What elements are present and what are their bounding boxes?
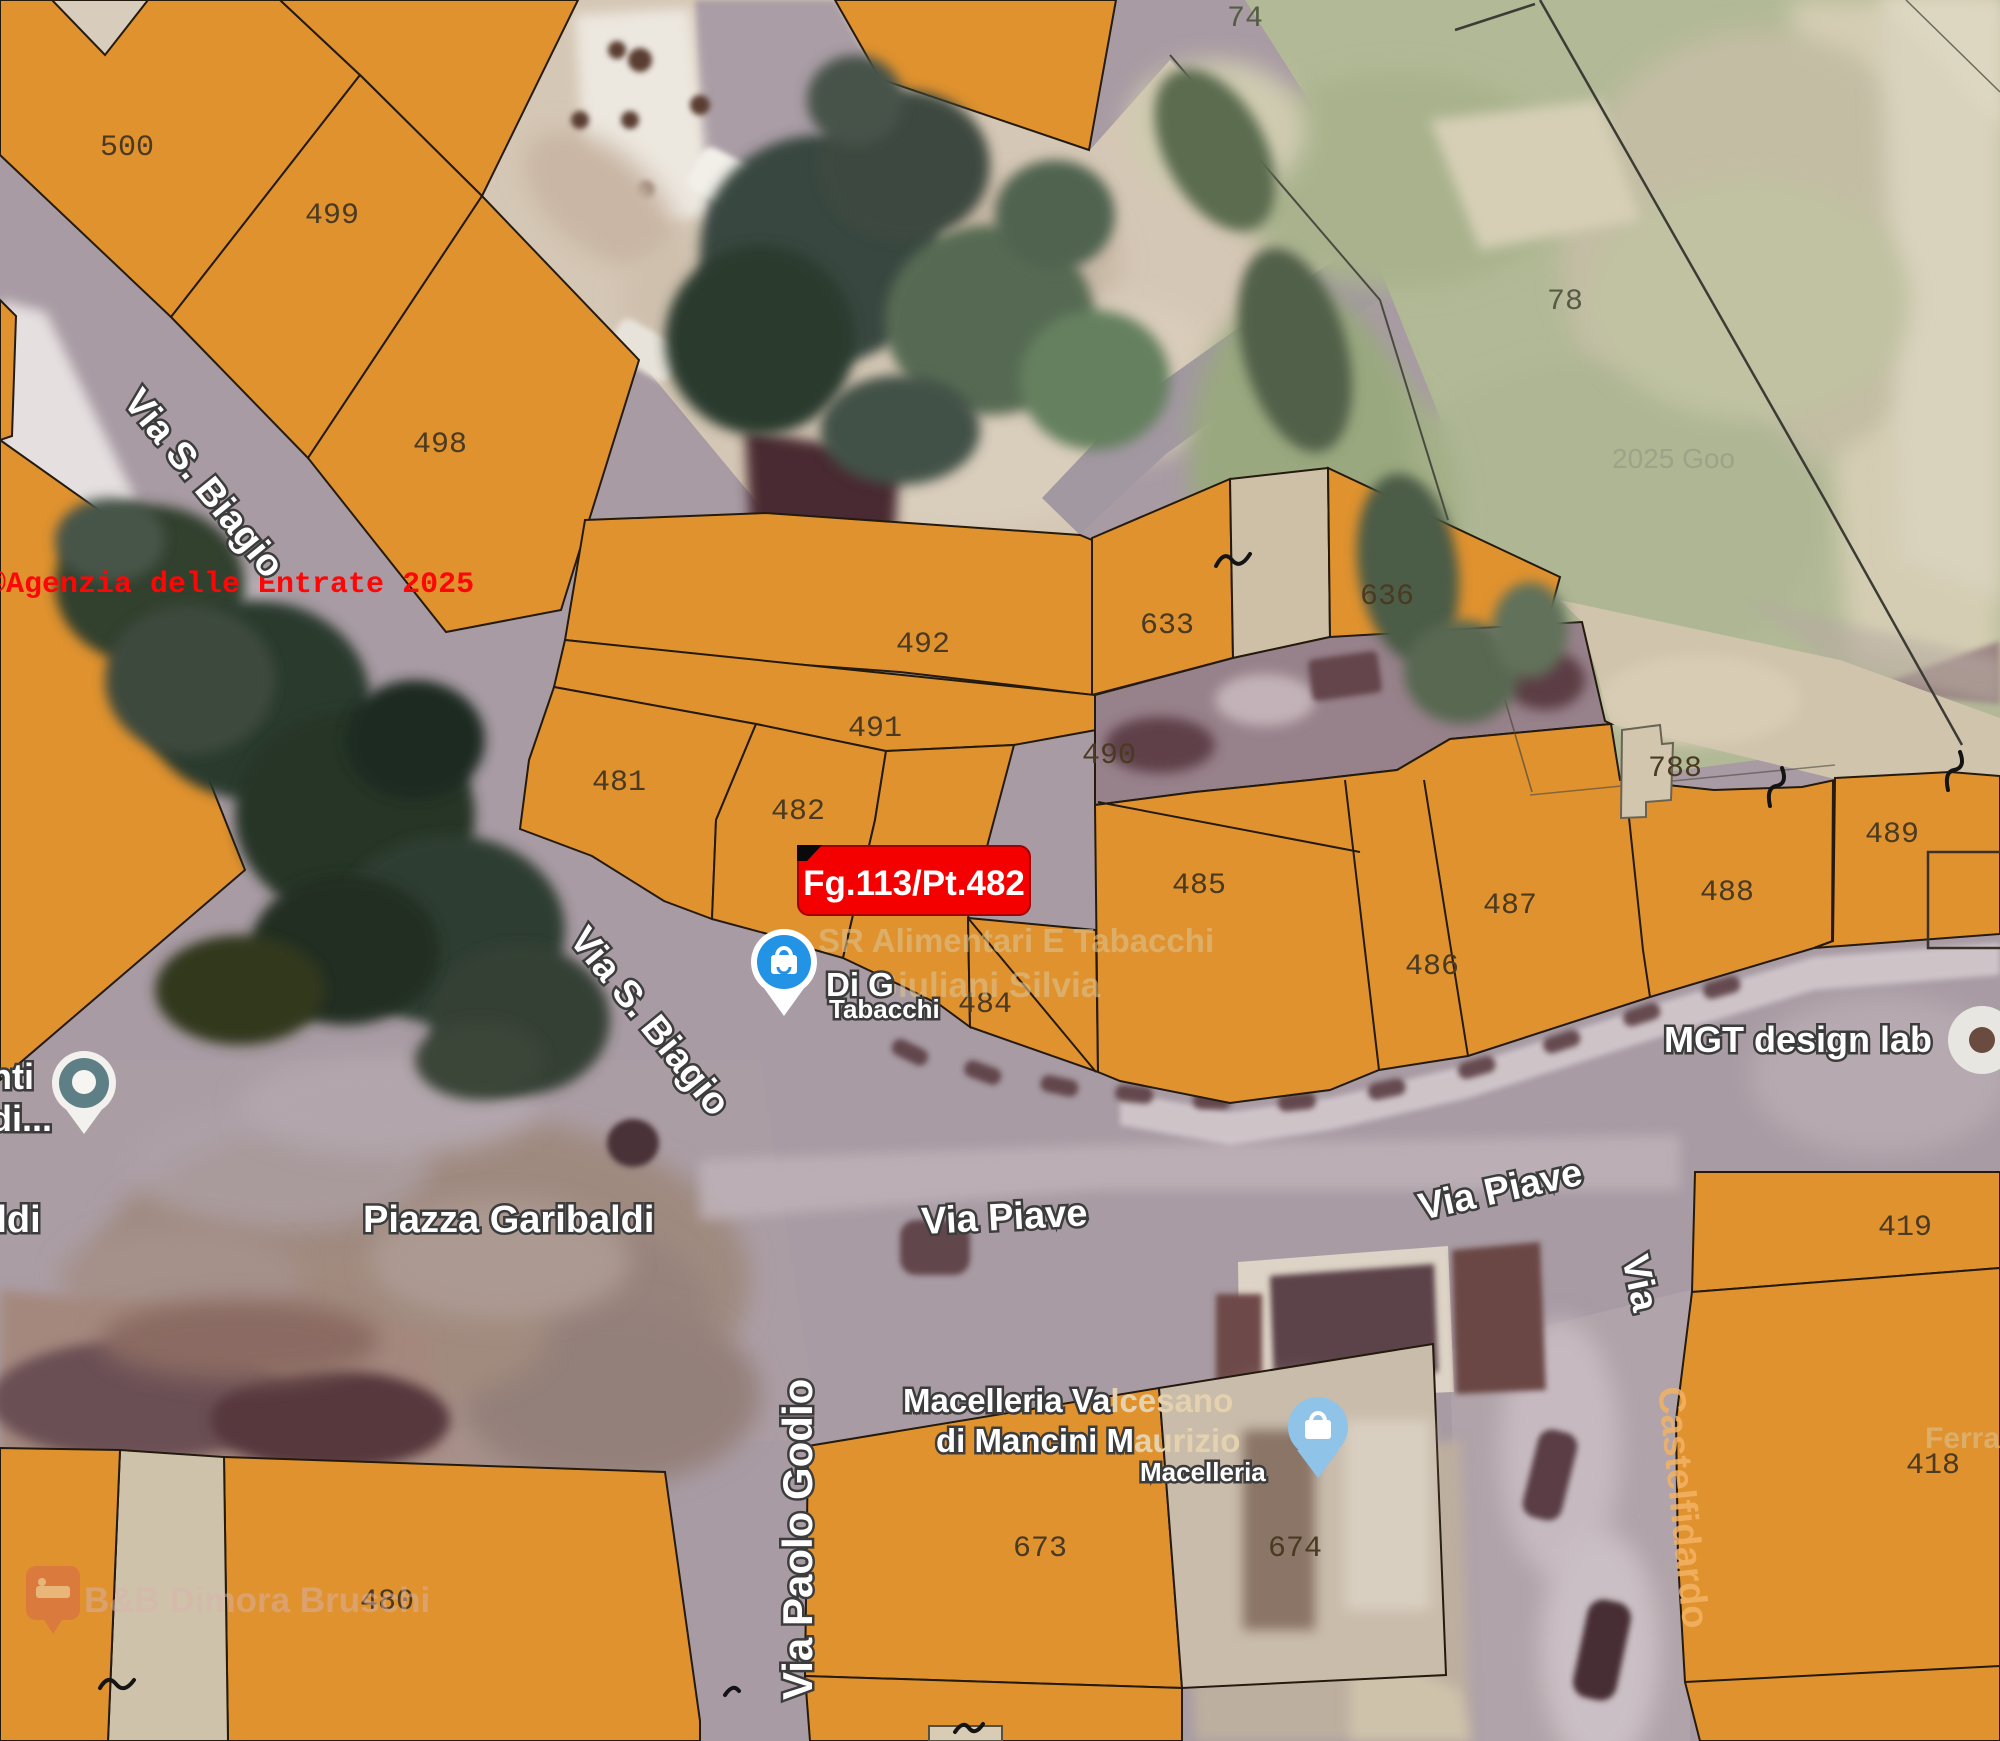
svg-text:Piazza Garibaldi: Piazza Garibaldi [363, 1199, 654, 1241]
svg-text:488: 488 [1700, 876, 1754, 910]
svg-text:673: 673 [1013, 1532, 1067, 1566]
svg-text:©Agenzia delle Entrate 2025: ©Agenzia delle Entrate 2025 [0, 568, 474, 602]
svg-text:Via Paolo Godio: Via Paolo Godio [774, 1379, 821, 1700]
svg-text:nti: nti [0, 1056, 34, 1097]
svg-text:B&B Dimora Bruschi: B&B Dimora Bruschi [84, 1581, 430, 1620]
svg-text:2025 Goo: 2025 Goo [1612, 443, 1735, 474]
svg-text:Macelleria Valcesano: Macelleria Valcesano [903, 1382, 1233, 1419]
svg-text:499: 499 [305, 199, 359, 233]
svg-text:baldi: baldi [0, 1199, 41, 1241]
svg-text:636: 636 [1360, 580, 1414, 614]
svg-text:491: 491 [848, 712, 902, 746]
svg-text:489: 489 [1865, 818, 1919, 852]
svg-text:74: 74 [1227, 2, 1263, 36]
svg-text:Fg.113/Pt.482: Fg.113/Pt.482 [803, 864, 1025, 903]
svg-text:498: 498 [413, 428, 467, 462]
svg-text:788: 788 [1648, 752, 1702, 786]
svg-text:di...: di... [0, 1098, 52, 1139]
svg-text:78: 78 [1547, 285, 1583, 319]
svg-text:674: 674 [1268, 1532, 1322, 1566]
svg-text:492: 492 [896, 628, 950, 662]
svg-text:487: 487 [1483, 889, 1537, 923]
svg-text:419: 419 [1878, 1211, 1932, 1245]
svg-text:Di G: Di G [826, 966, 894, 1003]
svg-text:482: 482 [771, 795, 825, 829]
svg-text:486: 486 [1405, 950, 1459, 984]
svg-text:MGT design lab: MGT design lab [1664, 1019, 1932, 1060]
svg-text:481: 481 [592, 766, 646, 800]
svg-text:Ferra: Ferra [1925, 1422, 2000, 1455]
svg-text:SR Alimentari E Tabacchi: SR Alimentari E Tabacchi [818, 922, 1214, 959]
svg-text:500: 500 [100, 131, 154, 165]
svg-text:633: 633 [1140, 609, 1194, 643]
svg-text:Via Piave: Via Piave [920, 1192, 1088, 1243]
svg-text:490: 490 [1082, 739, 1136, 773]
svg-text:485: 485 [1172, 869, 1226, 903]
svg-text:Macelleria: Macelleria [1140, 1457, 1266, 1487]
svg-text:di Mancini Maurizio: di Mancini Maurizio [936, 1422, 1240, 1459]
